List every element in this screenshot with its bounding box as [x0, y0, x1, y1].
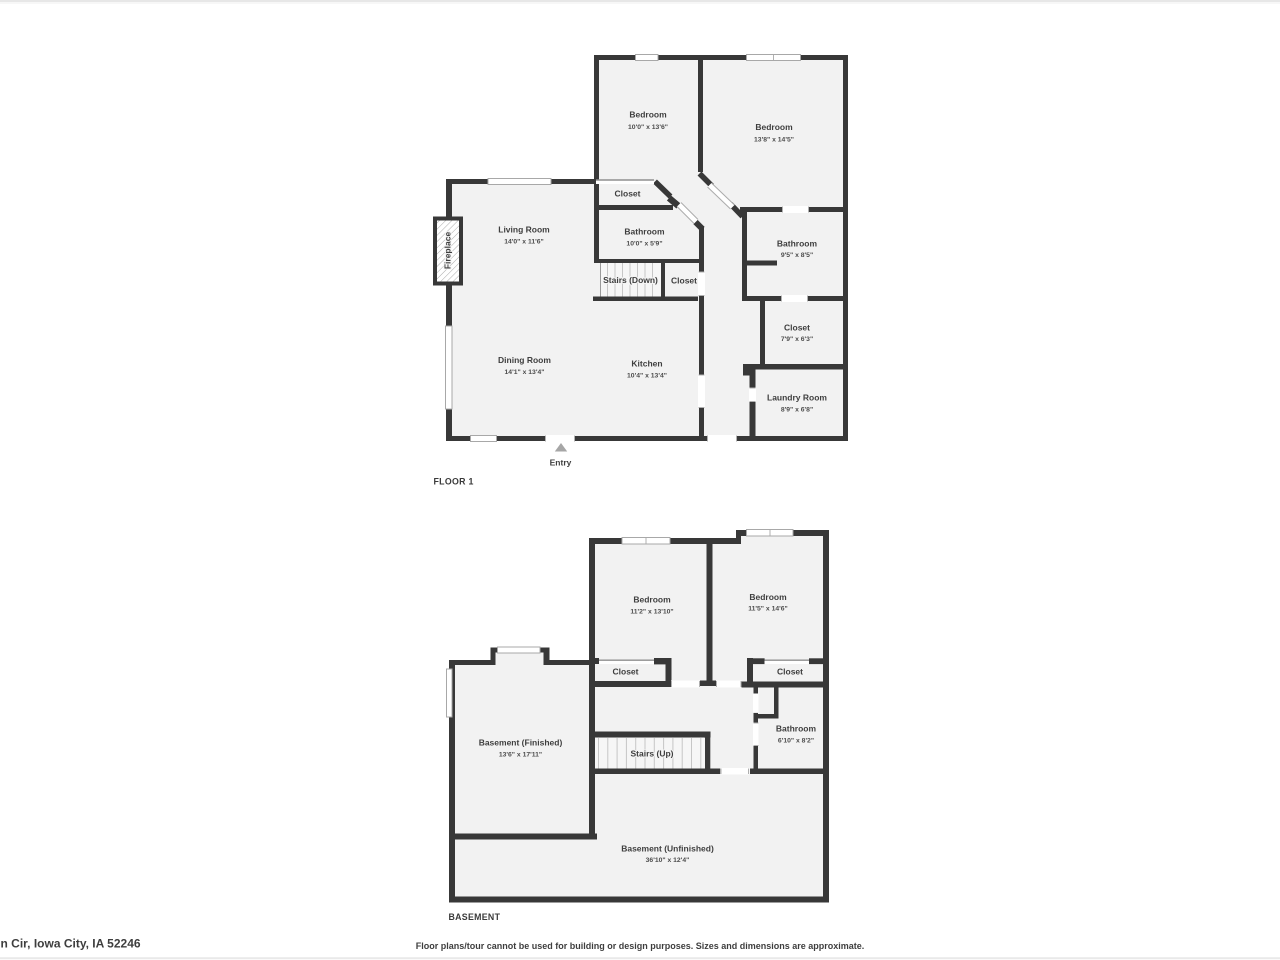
- svg-text:BASEMENT: BASEMENT: [449, 912, 501, 922]
- svg-text:Closet: Closet: [613, 667, 639, 677]
- svg-text:36'10" x 12'4": 36'10" x 12'4": [646, 857, 690, 864]
- svg-text:10'0" x 5'9": 10'0" x 5'9": [626, 241, 662, 248]
- svg-text:Living Room: Living Room: [498, 225, 550, 235]
- svg-text:Laundry Room: Laundry Room: [767, 393, 827, 403]
- svg-text:Bedroom: Bedroom: [755, 122, 793, 132]
- svg-text:Dining Room: Dining Room: [498, 355, 551, 365]
- svg-text:Closet: Closet: [784, 323, 810, 333]
- svg-text:11'2" x 13'10": 11'2" x 13'10": [630, 609, 673, 616]
- svg-text:Basement (Finished): Basement (Finished): [479, 738, 563, 748]
- svg-text:Bedroom: Bedroom: [629, 110, 667, 120]
- svg-text:Closet: Closet: [615, 189, 641, 199]
- svg-text:Bathroom: Bathroom: [776, 724, 817, 734]
- svg-text:Stairs (Down): Stairs (Down): [603, 275, 658, 285]
- svg-text:Closet: Closet: [671, 276, 697, 286]
- svg-text:Basement (Unfinished): Basement (Unfinished): [621, 844, 714, 854]
- svg-text:13'8" x 14'5": 13'8" x 14'5": [754, 137, 794, 144]
- svg-text:14'0" x 11'6": 14'0" x 11'6": [504, 239, 544, 246]
- svg-text:9'5" x 8'5": 9'5" x 8'5": [781, 252, 813, 259]
- svg-text:Bedroom: Bedroom: [633, 595, 671, 605]
- svg-text:Bathroom: Bathroom: [777, 239, 818, 249]
- svg-text:6'10" x 8'2": 6'10" x 8'2": [778, 738, 814, 745]
- svg-text:n Cir, Iowa City, IA 52246: n Cir, Iowa City, IA 52246: [1, 937, 141, 951]
- svg-text:Closet: Closet: [777, 667, 803, 677]
- svg-text:Bedroom: Bedroom: [749, 592, 787, 602]
- svg-text:8'9" x 6'8": 8'9" x 6'8": [781, 407, 813, 414]
- svg-text:Stairs (Up): Stairs (Up): [631, 749, 674, 759]
- svg-text:7'9" x 6'3": 7'9" x 6'3": [781, 336, 813, 343]
- svg-text:FLOOR 1: FLOOR 1: [434, 477, 474, 487]
- svg-text:10'4" x 13'4": 10'4" x 13'4": [627, 373, 667, 380]
- svg-text:Bathroom: Bathroom: [624, 227, 665, 237]
- svg-text:10'0" x 13'6": 10'0" x 13'6": [628, 124, 668, 131]
- svg-text:14'1" x 13'4": 14'1" x 13'4": [505, 369, 545, 376]
- svg-text:Entry: Entry: [550, 458, 572, 468]
- svg-text:Fireplace: Fireplace: [443, 232, 453, 270]
- svg-text:Floor plans/tour cannot be use: Floor plans/tour cannot be used for buil…: [416, 941, 865, 951]
- svg-text:Kitchen: Kitchen: [631, 359, 662, 369]
- svg-text:11'5" x 14'6": 11'5" x 14'6": [748, 606, 788, 613]
- svg-text:13'6" x 17'11": 13'6" x 17'11": [499, 752, 542, 759]
